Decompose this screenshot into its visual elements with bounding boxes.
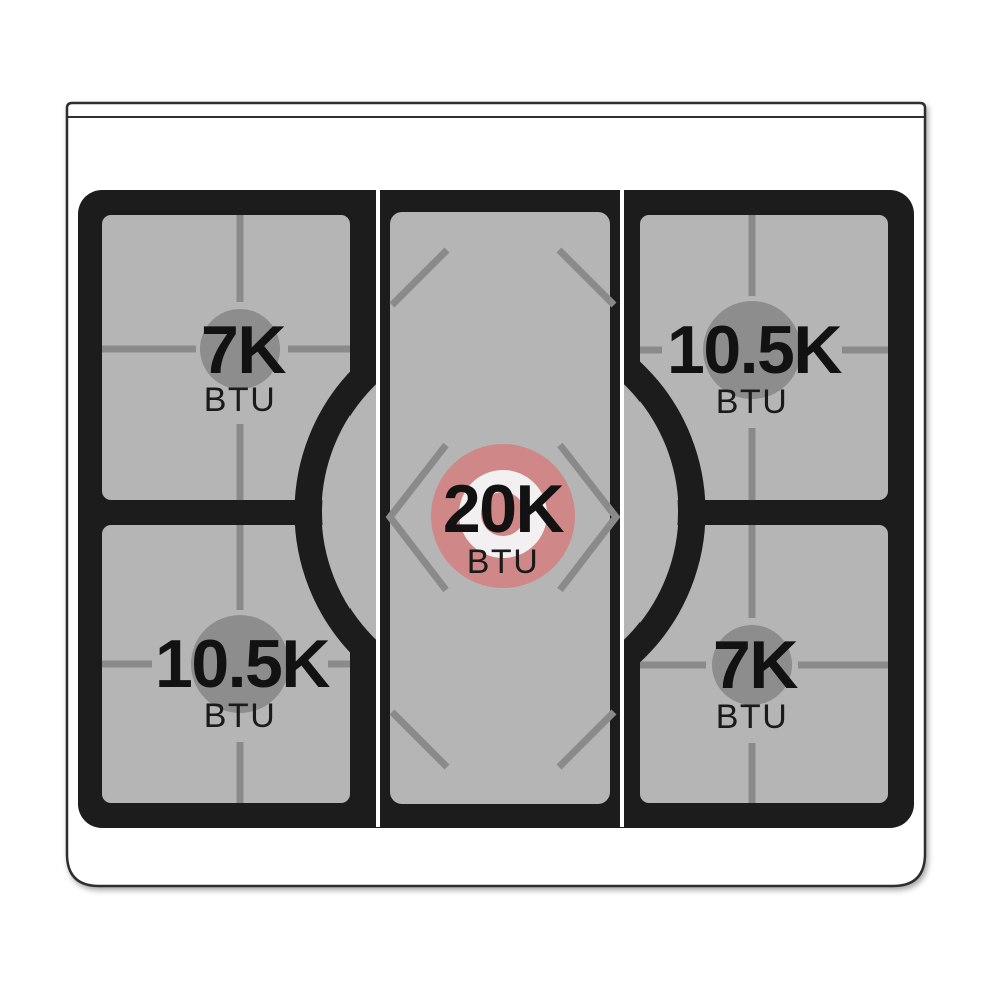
label-top-left-power: 7K [201, 312, 286, 388]
label-center-power: 20K [443, 471, 565, 547]
label-bottom-left-unit: BTU [204, 697, 277, 735]
label-bottom-right-unit: BTU [716, 698, 789, 736]
cooktop-diagram: 7K BTU 10.5K BTU 20K BTU 10.5K BTU 7K BT… [0, 0, 1000, 1000]
label-top-right-unit: BTU [716, 383, 789, 421]
label-top-left-unit: BTU [204, 381, 277, 419]
label-center-unit: BTU [467, 543, 540, 581]
label-bottom-right-power: 7K [713, 627, 798, 703]
label-top-right-power: 10.5K [667, 312, 842, 388]
label-bottom-left-power: 10.5K [155, 626, 330, 702]
